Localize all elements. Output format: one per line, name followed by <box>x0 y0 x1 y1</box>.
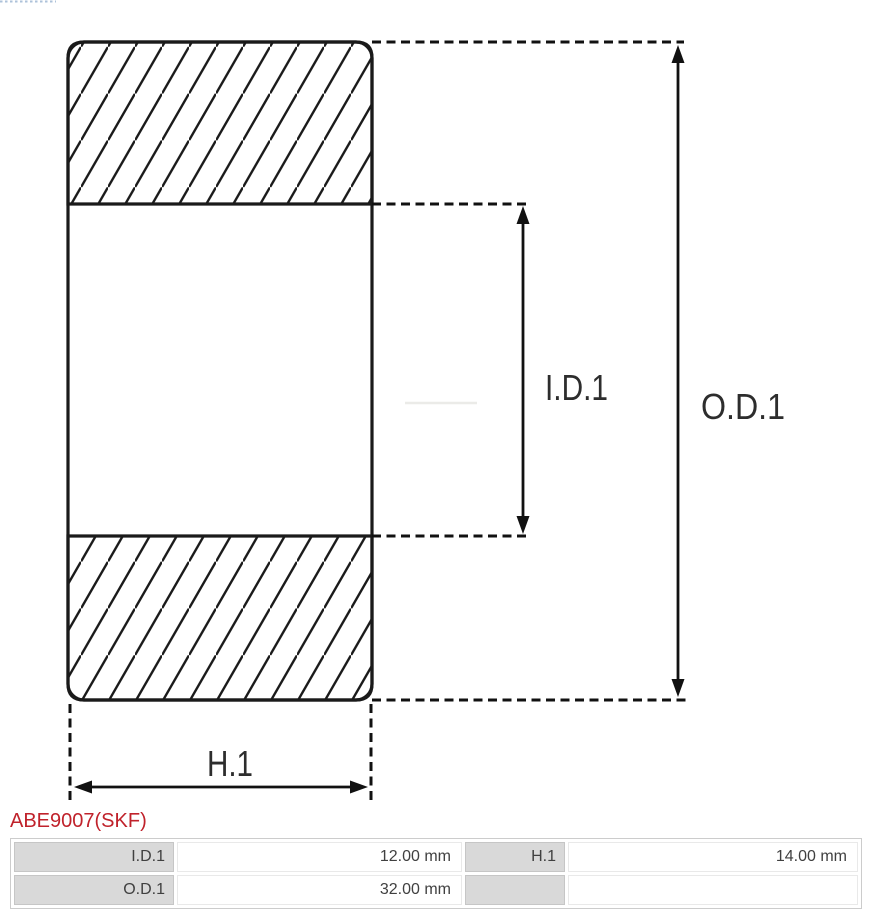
part-number-title: ABE9007(SKF) <box>10 809 147 833</box>
spec-value-cell: 12.00 mm <box>177 842 462 872</box>
od-dimension-label: O.D.1 <box>701 386 785 427</box>
spec-table-row: I.D.1 12.00 mm H.1 14.00 mm <box>14 842 858 872</box>
od-dimension-arrow <box>672 45 685 697</box>
spec-label-cell: I.D.1 <box>14 842 174 872</box>
spec-value-cell: 32.00 mm <box>177 875 462 905</box>
bearing-diagram: I.D.1 O.D.1 H.1 <box>0 0 871 805</box>
spec-table: I.D.1 12.00 mm H.1 14.00 mm O.D.1 32.00 … <box>10 838 862 909</box>
spec-value-cell: 14.00 mm <box>568 842 858 872</box>
id-dimension-arrow <box>517 206 530 534</box>
bearing-bottom-ring-section <box>68 536 372 700</box>
spec-value-cell <box>568 875 858 905</box>
bearing-top-ring-section <box>68 42 372 204</box>
product-dimension-page: I.D.1 O.D.1 H.1 ABE9007(SKF) I.D.1 12.00… <box>0 0 871 913</box>
spec-label-cell: H.1 <box>465 842 565 872</box>
spec-label-cell <box>465 875 565 905</box>
h-dimension-label: H.1 <box>207 743 253 784</box>
spec-label-cell: O.D.1 <box>14 875 174 905</box>
spec-table-row: O.D.1 32.00 mm <box>14 875 858 905</box>
id-dimension-label: I.D.1 <box>545 367 608 408</box>
